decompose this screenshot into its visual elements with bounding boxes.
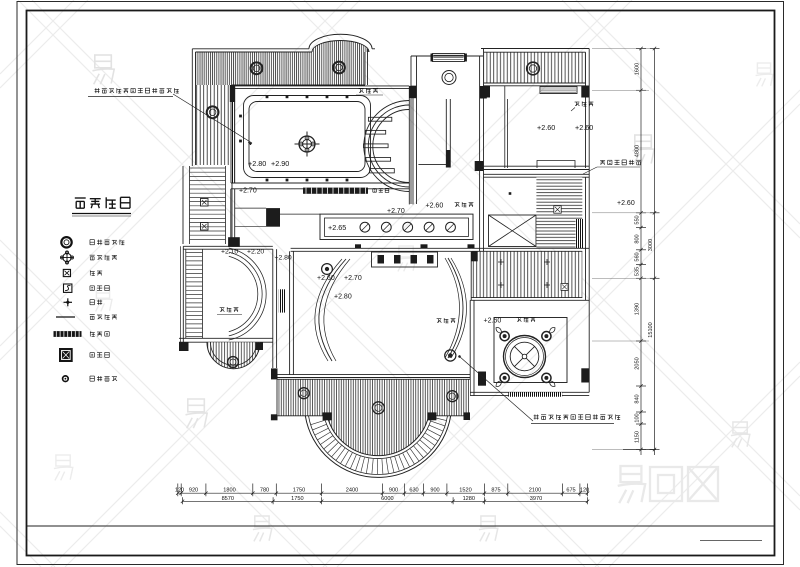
- svg-text:100: 100: [635, 413, 641, 422]
- svg-text:6000: 6000: [381, 496, 393, 502]
- svg-text:8570: 8570: [222, 496, 234, 502]
- svg-text:1600: 1600: [635, 63, 641, 75]
- svg-text:900: 900: [430, 487, 439, 493]
- svg-text:2050: 2050: [635, 357, 641, 369]
- svg-text:1280: 1280: [463, 496, 475, 502]
- svg-text:+2.60: +2.60: [575, 123, 593, 132]
- svg-text:2100: 2100: [529, 487, 541, 493]
- svg-text:15100: 15100: [648, 322, 654, 338]
- svg-text:+2.20: +2.20: [247, 249, 264, 256]
- svg-text:120: 120: [580, 487, 589, 493]
- svg-text:+2.70: +2.70: [239, 188, 257, 195]
- svg-text:840: 840: [635, 394, 641, 403]
- svg-text:1750: 1750: [293, 487, 305, 493]
- svg-text:+2.80: +2.80: [248, 159, 266, 168]
- svg-text:630: 630: [409, 487, 418, 493]
- svg-text:+2.60: +2.60: [426, 203, 444, 210]
- svg-text:560: 560: [635, 252, 641, 261]
- svg-text:+2.65: +2.65: [328, 223, 346, 232]
- svg-text:920: 920: [189, 487, 198, 493]
- svg-text:1520: 1520: [459, 487, 471, 493]
- svg-text:+2.10: +2.10: [221, 249, 238, 256]
- svg-text:2400: 2400: [346, 487, 358, 493]
- svg-text:+2.60: +2.60: [317, 275, 335, 282]
- svg-text:4800: 4800: [635, 145, 641, 157]
- svg-text:780: 780: [260, 487, 269, 493]
- svg-text:+2.80: +2.80: [334, 294, 352, 301]
- svg-text:+2.80: +2.80: [275, 255, 292, 262]
- svg-text:900: 900: [389, 487, 398, 493]
- svg-text:1800: 1800: [223, 487, 235, 493]
- svg-text:+2.60: +2.60: [617, 200, 635, 207]
- svg-text:1750: 1750: [291, 496, 303, 502]
- svg-text:+2.60: +2.60: [484, 318, 502, 325]
- svg-text:+2.90: +2.90: [271, 159, 289, 168]
- svg-text:3970: 3970: [530, 496, 542, 502]
- svg-text:535: 535: [635, 267, 641, 276]
- svg-text:+2.70: +2.70: [344, 275, 362, 282]
- svg-text:+2.60: +2.60: [537, 123, 555, 132]
- svg-text:550: 550: [635, 215, 641, 224]
- svg-text:3000: 3000: [648, 239, 654, 251]
- svg-text:120: 120: [175, 487, 184, 493]
- svg-text:875: 875: [491, 487, 500, 493]
- svg-text:+2.70: +2.70: [387, 208, 405, 215]
- svg-text:1390: 1390: [635, 303, 641, 315]
- svg-text:675: 675: [566, 487, 575, 493]
- svg-text:1150: 1150: [635, 431, 641, 443]
- svg-text:800: 800: [635, 234, 641, 243]
